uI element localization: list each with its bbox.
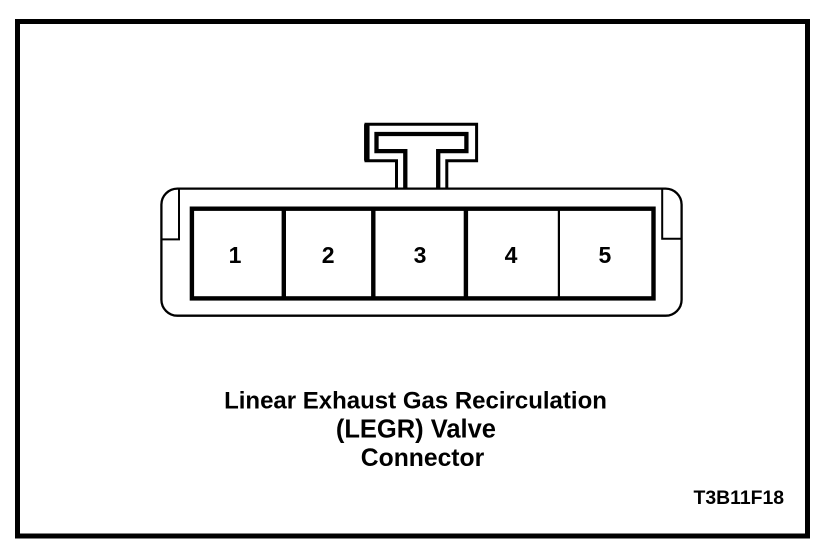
svg-text:T3B11F18: T3B11F18 [694,487,785,509]
svg-text:Linear Exhaust Gas Recirculati: Linear Exhaust Gas Recirculation [224,388,607,415]
svg-text:4: 4 [505,242,518,268]
svg-text:1: 1 [229,242,242,268]
svg-text:5: 5 [599,242,612,268]
svg-text:(LEGR) Valve: (LEGR) Valve [336,415,496,443]
svg-text:3: 3 [414,242,427,268]
svg-text:Connector: Connector [361,445,485,472]
svg-text:2: 2 [322,242,335,268]
